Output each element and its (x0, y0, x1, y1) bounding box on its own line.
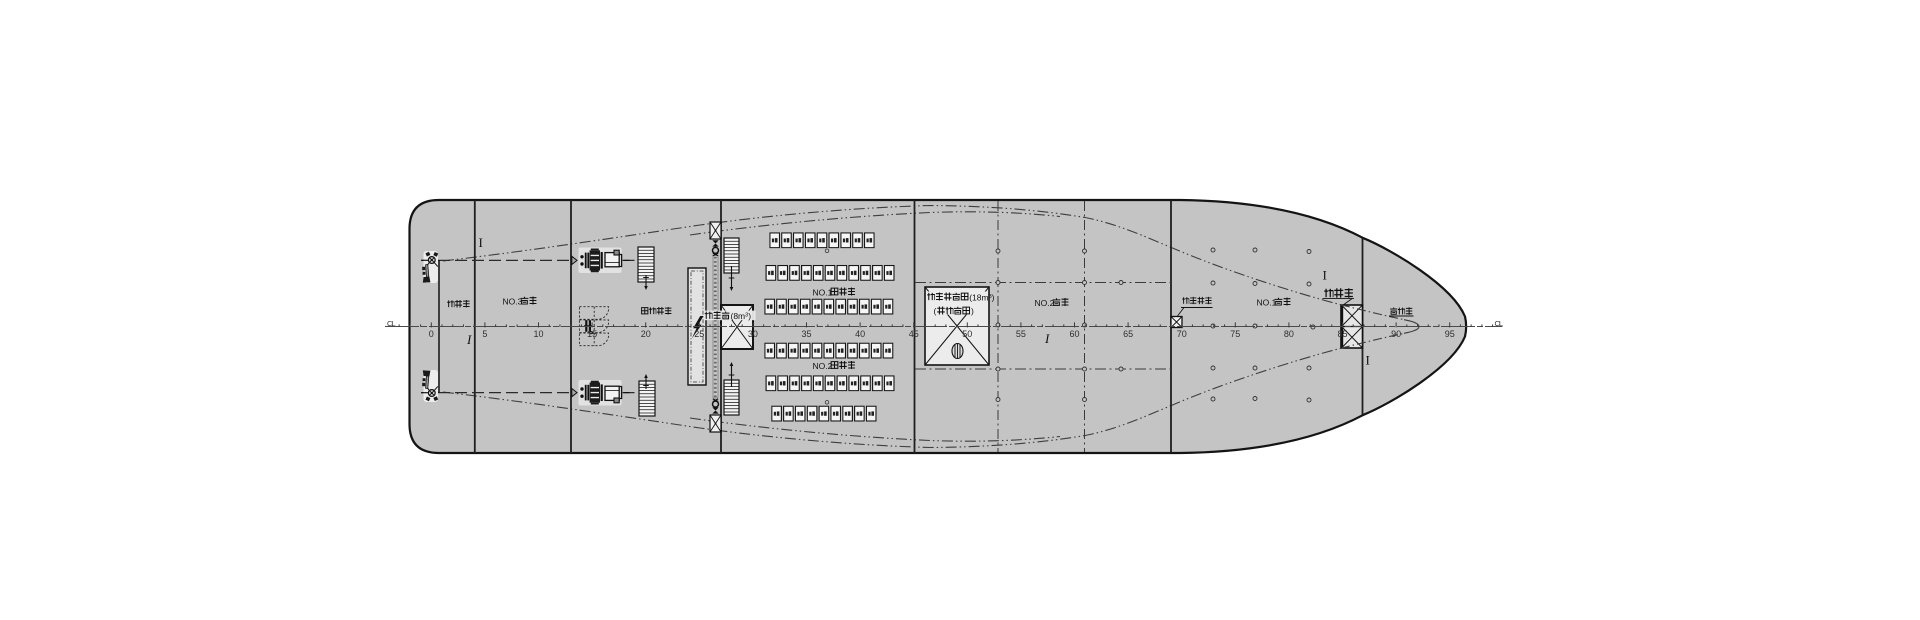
svg-text:I: I (479, 235, 483, 250)
svg-text:NO.2: NO.2 (1035, 298, 1055, 308)
svg-text:(: ( (934, 306, 937, 316)
svg-text:I: I (466, 332, 472, 347)
svg-text:90: 90 (1391, 329, 1401, 339)
svg-text:15: 15 (587, 329, 597, 339)
svg-text:75: 75 (1230, 329, 1240, 339)
svg-text:(8m3): (8m3) (731, 311, 752, 321)
svg-text:10: 10 (533, 329, 543, 339)
svg-text:60: 60 (1069, 329, 1079, 339)
svg-text:CL: CL (387, 319, 395, 328)
svg-text:I: I (1044, 331, 1050, 346)
svg-text:50: 50 (962, 329, 972, 339)
svg-text:55: 55 (1016, 329, 1026, 339)
svg-text:25: 25 (694, 329, 704, 339)
svg-text:CL: CL (1495, 319, 1503, 328)
svg-text:I: I (1323, 268, 1327, 283)
svg-text:30: 30 (748, 329, 758, 339)
svg-text:70: 70 (1177, 329, 1187, 339)
svg-text:20: 20 (641, 329, 651, 339)
svg-text:): ) (971, 306, 974, 316)
svg-text:NO.3: NO.3 (503, 297, 523, 307)
svg-text:35: 35 (801, 329, 811, 339)
svg-text:NO.1: NO.1 (1257, 298, 1277, 308)
svg-text:85: 85 (1337, 329, 1347, 339)
svg-text:40: 40 (855, 329, 865, 339)
svg-text:95: 95 (1445, 329, 1455, 339)
svg-text:5: 5 (482, 329, 487, 339)
svg-text:0: 0 (429, 329, 434, 339)
svg-text:80: 80 (1284, 329, 1294, 339)
svg-text:(18m3): (18m3) (969, 292, 994, 302)
svg-text:65: 65 (1123, 329, 1133, 339)
svg-text:NO.1: NO.1 (813, 288, 833, 298)
svg-text:I: I (1366, 353, 1370, 368)
svg-text:NO.2: NO.2 (813, 361, 833, 371)
svg-text:45: 45 (909, 329, 919, 339)
